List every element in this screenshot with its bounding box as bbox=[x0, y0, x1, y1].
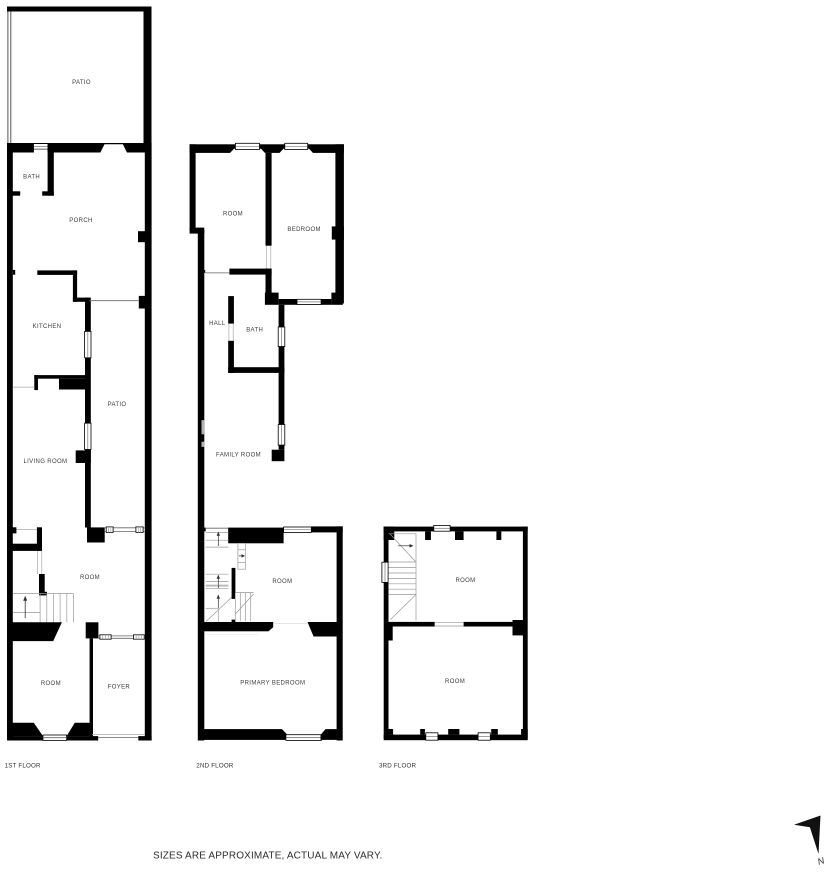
svg-text:BATH: BATH bbox=[246, 328, 263, 334]
svg-text:FAMILY ROOM: FAMILY ROOM bbox=[216, 453, 261, 459]
svg-text:3RD FLOOR: 3RD FLOOR bbox=[379, 763, 417, 770]
svg-text:ROOM: ROOM bbox=[41, 681, 61, 687]
svg-text:ROOM: ROOM bbox=[455, 578, 475, 584]
svg-text:HALL: HALL bbox=[209, 321, 226, 327]
svg-text:PRIMARY BEDROOM: PRIMARY BEDROOM bbox=[240, 681, 305, 687]
svg-text:LIVING ROOM: LIVING ROOM bbox=[23, 459, 67, 465]
svg-text:PATIO: PATIO bbox=[108, 402, 127, 408]
svg-text:2ND FLOOR: 2ND FLOOR bbox=[196, 763, 234, 770]
svg-text:PORCH: PORCH bbox=[69, 218, 92, 224]
svg-text:ROOM: ROOM bbox=[80, 575, 100, 581]
svg-text:SIZES ARE APPROXIMATE, ACTUAL: SIZES ARE APPROXIMATE, ACTUAL MAY VARY. bbox=[153, 851, 382, 862]
svg-text:FOYER: FOYER bbox=[108, 685, 131, 691]
svg-text:BEDROOM: BEDROOM bbox=[287, 227, 320, 233]
svg-text:PATIO: PATIO bbox=[72, 80, 91, 86]
svg-text:BATH: BATH bbox=[23, 174, 40, 180]
svg-text:ROOM: ROOM bbox=[445, 679, 465, 685]
svg-text:ROOM: ROOM bbox=[223, 211, 243, 217]
svg-text:KITCHEN: KITCHEN bbox=[33, 324, 62, 330]
svg-text:1ST FLOOR: 1ST FLOOR bbox=[5, 763, 41, 770]
svg-text:ROOM: ROOM bbox=[272, 579, 292, 585]
